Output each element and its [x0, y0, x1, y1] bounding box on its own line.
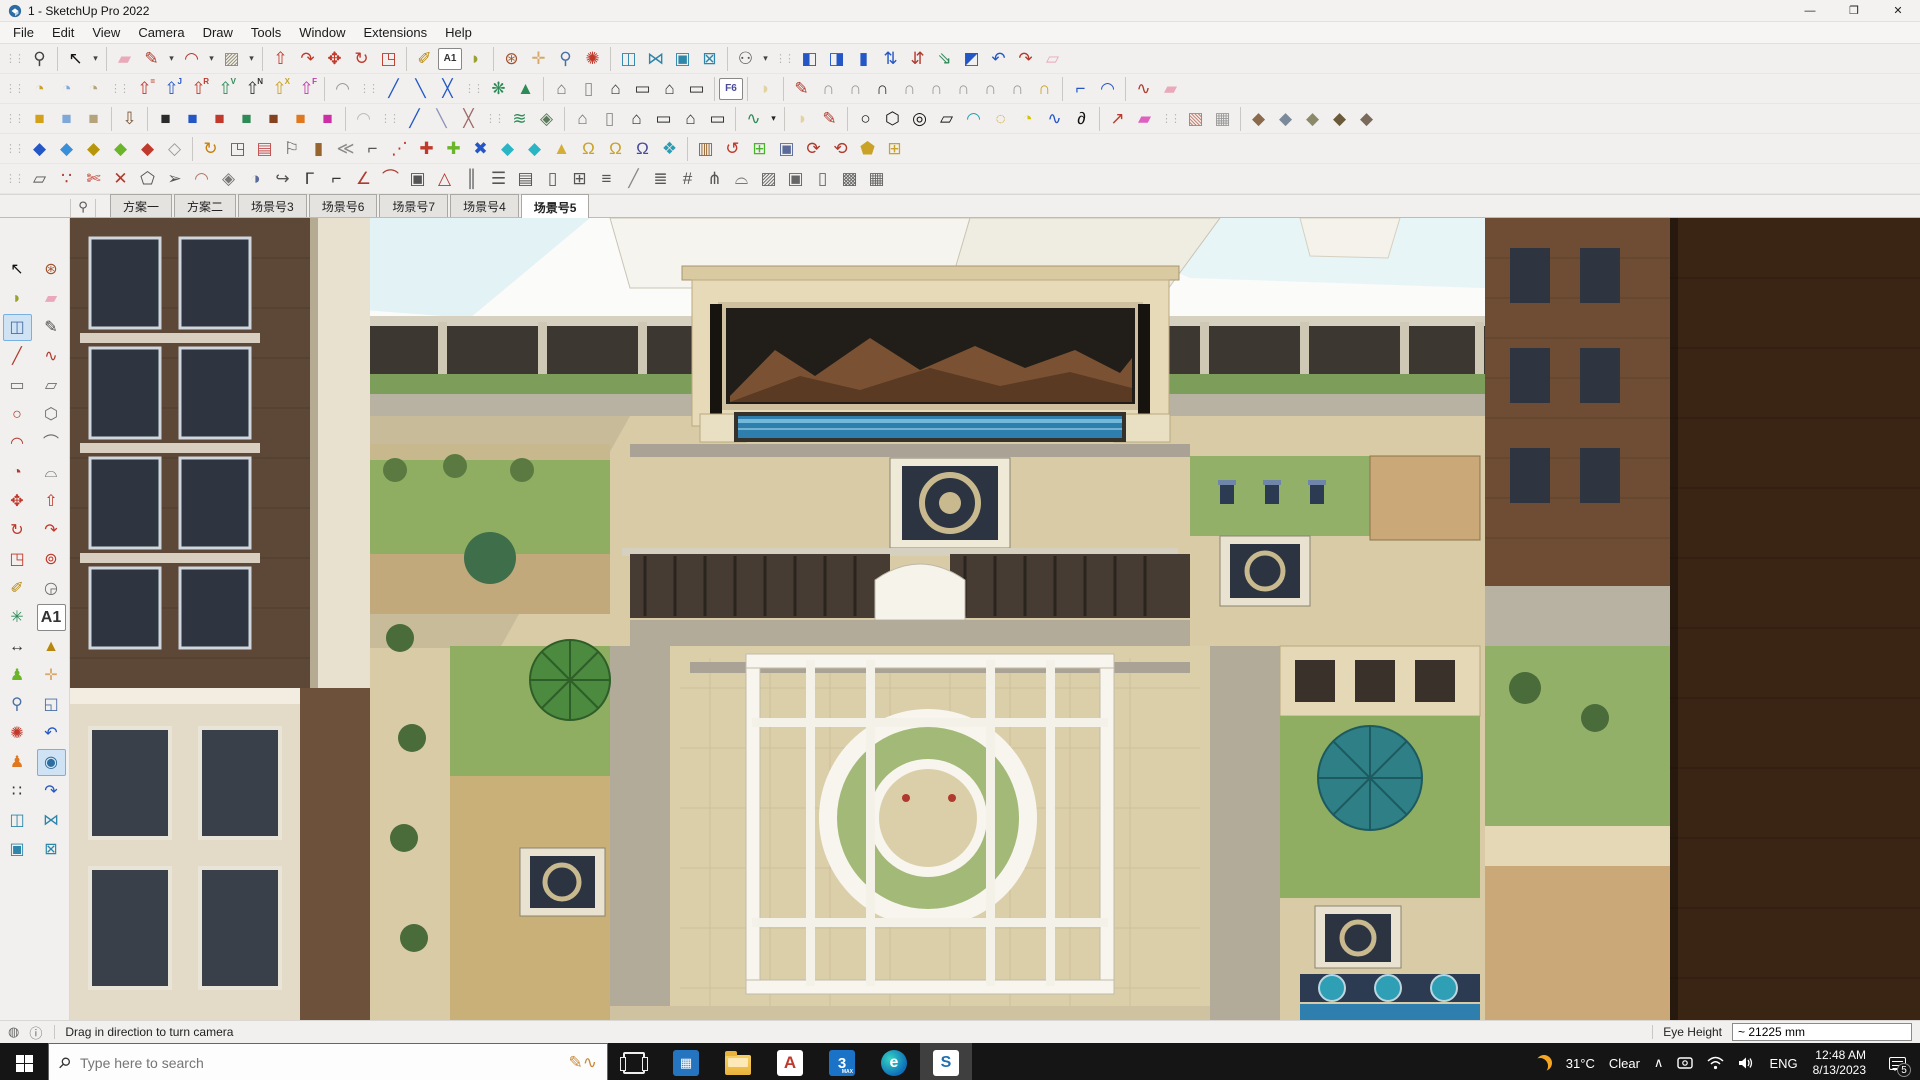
section-plane-button[interactable]: ◫: [615, 45, 642, 72]
left-tool-palette: ↖⊛◗▰◫✎╱∿▭▱○⬡◠⌒◔⌓✥⇧↻↷◳⊚✐◶✳A1↔▲♟✛⚲◱✺↶♟◉∷↷◫…: [0, 218, 70, 1020]
sketch-pencil-button[interactable]: ✎: [788, 75, 815, 102]
orbit-button[interactable]: ⊛: [37, 256, 66, 283]
ext-wall-button[interactable]: ▮: [850, 45, 877, 72]
pie-tool-button[interactable]: ◔: [1014, 105, 1041, 132]
curve-blue-button[interactable]: ∿: [1041, 105, 1068, 132]
hook-red-button[interactable]: ⌒: [377, 165, 404, 192]
zoom-extents-button[interactable]: ✺: [3, 720, 32, 747]
menu-edit[interactable]: Edit: [43, 23, 83, 42]
add-detail-button[interactable]: ◆: [1326, 105, 1353, 132]
taskbar-sketchup-button[interactable]: S: [920, 1043, 972, 1080]
lattice-red-button[interactable]: ◆: [134, 135, 161, 162]
toolbar-separator: [1062, 77, 1063, 101]
stairs-a-button[interactable]: ≣: [647, 165, 674, 192]
toolbar-separator: [610, 47, 611, 71]
stairs-b-button[interactable]: #: [674, 165, 701, 192]
flip-edge-button[interactable]: ◆: [1353, 105, 1380, 132]
weather-condition[interactable]: Clear: [1602, 1056, 1647, 1071]
arch-tool-5-button[interactable]: ∩: [923, 75, 950, 102]
curve-red-button[interactable]: ∿: [1130, 75, 1157, 102]
sketchup-logo-icon: [8, 4, 22, 18]
ext-redo-button[interactable]: ↷: [1012, 45, 1039, 72]
offset-button[interactable]: ⊚: [37, 546, 66, 573]
component-tan-button[interactable]: ■: [80, 105, 107, 132]
swirl-red-button[interactable]: ↺: [719, 135, 746, 162]
bend-arrow-button[interactable]: ↪: [269, 165, 296, 192]
corner-a-button[interactable]: Γ: [296, 165, 323, 192]
section-plane-button[interactable]: ◫: [3, 807, 32, 834]
windows-logo-icon: [16, 1055, 33, 1072]
walk-button[interactable]: ∷: [3, 778, 32, 805]
scene-tab-7[interactable]: 场景号5: [521, 194, 590, 218]
ext-raise-button[interactable]: ⇅: [877, 45, 904, 72]
crate-tool-button[interactable]: ▮: [305, 135, 332, 162]
lattice-blue-button[interactable]: ◆: [26, 135, 53, 162]
box-brown-button[interactable]: ■: [260, 105, 287, 132]
search-input[interactable]: [80, 1055, 569, 1071]
taskbar-search[interactable]: ⚲ ✎∿: [48, 1043, 608, 1080]
pyramid-button[interactable]: ▲: [548, 135, 575, 162]
toolbar-row-3: ⋮⋮■■■⇩■■■■■■■◠⋮⋮╱╲╳⋮⋮≋◈⌂▯⌂▭⌂▭∿▾◗✎○⬡◎▱◠◌◔…: [0, 104, 1920, 134]
select-dropdown[interactable]: ▾: [89, 45, 102, 72]
weave-tool-button[interactable]: ▦: [863, 165, 890, 192]
circle-dashed-button[interactable]: ◌: [987, 105, 1014, 132]
freehand-button[interactable]: ∿: [37, 343, 66, 370]
shell-tool-2-button[interactable]: ◗: [789, 105, 816, 132]
waterdrop-2-button[interactable]: ◆: [521, 135, 548, 162]
arch-tool-7-button[interactable]: ∩: [977, 75, 1004, 102]
round-corner-button[interactable]: ◔: [26, 75, 53, 102]
toolbar-separator: [493, 47, 494, 71]
toolbar-row-5: ⋮⋮▱∵✄✕⬠➢◠◈◑↪Γ⌐∠⌒▣△║☰▤▯⊞≡╱≣#⋔⌓▨▣▯▩▦: [0, 164, 1920, 194]
component-box-button[interactable]: ◫: [3, 314, 32, 341]
face-style-button[interactable]: ⚇: [732, 45, 759, 72]
arch-window-button[interactable]: ⌓: [728, 165, 755, 192]
section-fill-button[interactable]: ▣: [3, 836, 32, 863]
arch-tool-4-button[interactable]: ∩: [896, 75, 923, 102]
shape-point-button[interactable]: ➢: [161, 165, 188, 192]
curve-pink-button[interactable]: ▰: [1157, 75, 1184, 102]
arrow-2d-button[interactable]: ↗: [1104, 105, 1131, 132]
notification-center-button[interactable]: 5: [1874, 1043, 1920, 1080]
viewport-3d[interactable]: [70, 218, 1920, 1020]
arch-tool-8-button[interactable]: ∩: [1004, 75, 1031, 102]
component-gold-button[interactable]: ■: [26, 105, 53, 132]
lattice-white-button[interactable]: ◇: [161, 135, 188, 162]
move-button[interactable]: ✥: [321, 45, 348, 72]
book-tool-button[interactable]: ⊞: [566, 165, 593, 192]
roof-maker-button[interactable]: ⌂: [656, 75, 683, 102]
house-builder-button[interactable]: ⌂: [548, 75, 575, 102]
taskbar-3ds-max-button[interactable]: 3MAX: [816, 1043, 868, 1080]
clock-time: 12:48 AM: [1813, 1048, 1866, 1063]
scene-tab-2[interactable]: 方案二: [174, 194, 236, 217]
angle-red-button[interactable]: ∠: [350, 165, 377, 192]
task-view-icon: [623, 1052, 645, 1074]
arc-button[interactable]: ◠: [178, 45, 205, 72]
pushpull-extrude-button[interactable]: ⇧X: [266, 75, 293, 102]
rotated-rectangle-button[interactable]: ▱: [37, 372, 66, 399]
notification-badge: 5: [1897, 1063, 1911, 1077]
drape-button[interactable]: ◆: [1299, 105, 1326, 132]
pencil-stripe-button[interactable]: ╲: [428, 105, 455, 132]
pie-button[interactable]: ◔: [3, 459, 32, 486]
pushpull-equal-button[interactable]: ⇧=: [131, 75, 158, 102]
round-corner-3-button[interactable]: ◔: [80, 75, 107, 102]
meet-now-icon[interactable]: [1670, 1055, 1700, 1071]
corner-b-button[interactable]: ⌐: [323, 165, 350, 192]
scale-button[interactable]: ◳: [375, 45, 402, 72]
bent-pipe-button[interactable]: ⌐: [359, 135, 386, 162]
profile-graph-button[interactable]: ∿: [740, 105, 767, 132]
scene-tab-4[interactable]: 场景号6: [309, 194, 378, 217]
wire-sphere-button[interactable]: ◈: [533, 105, 560, 132]
status-divider-right: [1652, 1025, 1653, 1039]
zoom-window-button[interactable]: ◱: [37, 691, 66, 718]
slab-outline-button[interactable]: ▭: [650, 105, 677, 132]
text-button[interactable]: A1: [37, 604, 66, 631]
smoove-button[interactable]: ◆: [1245, 105, 1272, 132]
ext-slope-button[interactable]: ◨: [823, 45, 850, 72]
box-blue-button[interactable]: ■: [179, 105, 206, 132]
arch-tool-3-button[interactable]: ∩: [869, 75, 896, 102]
scale-button[interactable]: ◳: [3, 546, 32, 573]
pan-button[interactable]: ✛: [37, 662, 66, 689]
shield-gold-button[interactable]: ⬟: [854, 135, 881, 162]
tape-measure-button[interactable]: ✐: [3, 575, 32, 602]
house-plan-button[interactable]: ⌂: [602, 75, 629, 102]
branch-tool-button[interactable]: ⋔: [701, 165, 728, 192]
ext-restore-button[interactable]: ▱: [1039, 45, 1066, 72]
ext-target-button[interactable]: ⇘: [931, 45, 958, 72]
draw-line-guide-button[interactable]: ╳: [434, 75, 461, 102]
menu-view[interactable]: View: [83, 23, 129, 42]
cone-red-button[interactable]: △: [431, 165, 458, 192]
taskbar-edge-button[interactable]: e: [868, 1043, 920, 1080]
waterdrop-button[interactable]: ◆: [494, 135, 521, 162]
polygon-tool-button[interactable]: ⬡: [879, 105, 906, 132]
pencil-button[interactable]: ✎: [37, 314, 66, 341]
rectangle-button[interactable]: ▭: [3, 372, 32, 399]
house-outline-2-button[interactable]: ⌂: [677, 105, 704, 132]
toolbar-separator: [783, 77, 784, 101]
arch-tool-9-button[interactable]: ∩: [1031, 75, 1058, 102]
house-outline-button[interactable]: ⌂: [623, 105, 650, 132]
polygon-button[interactable]: ⬡: [37, 401, 66, 428]
rectangle-dropdown[interactable]: ▾: [245, 45, 258, 72]
ext-flip-button[interactable]: ◩: [958, 45, 985, 72]
pushpull-normal-button[interactable]: ⇧N: [239, 75, 266, 102]
marker-pen-button[interactable]: ✎: [816, 105, 843, 132]
spring-tool-button[interactable]: ≋: [506, 105, 533, 132]
fence-a-button[interactable]: ║: [458, 165, 485, 192]
weather-icon[interactable]: [1529, 1055, 1559, 1071]
lattice-sky-button[interactable]: ◆: [53, 135, 80, 162]
taskbar: ⚲ ✎∿ ▦A3MAXeS 31°C Clear ∧ ENG 12:48 AM …: [0, 1043, 1920, 1080]
menu-file[interactable]: File: [4, 23, 43, 42]
cut-tool-button[interactable]: ✄: [80, 165, 107, 192]
box-red-button[interactable]: ■: [206, 105, 233, 132]
weather-temperature[interactable]: 31°C: [1559, 1056, 1602, 1071]
eraser-button[interactable]: ▰: [111, 45, 138, 72]
cross-blue-button[interactable]: ✖: [467, 135, 494, 162]
dome-tool-button[interactable]: ◠: [350, 105, 377, 132]
door-tool-button[interactable]: ▯: [809, 165, 836, 192]
menu-extensions[interactable]: Extensions: [355, 23, 437, 42]
taskbar-autocad-button[interactable]: A: [764, 1043, 816, 1080]
shell-tool-button[interactable]: ◗: [752, 75, 779, 102]
circle-button[interactable]: ○: [3, 401, 32, 428]
line-button[interactable]: ✎: [138, 45, 165, 72]
bezier-red-button[interactable]: ∵: [53, 165, 80, 192]
box-rotate-2-button[interactable]: ⟲: [827, 135, 854, 162]
toolbar-drag-handle: ⋮⋮: [5, 82, 23, 95]
vegetation-button[interactable]: ❋: [485, 75, 512, 102]
dice-tool-button[interactable]: ⊞: [881, 135, 908, 162]
wifi-icon[interactable]: [1700, 1056, 1731, 1070]
select-button[interactable]: ↖: [3, 256, 32, 283]
window-title: 1 - SketchUp Pro 2022: [28, 4, 149, 18]
eye-height-input[interactable]: [1732, 1023, 1912, 1041]
round-corner-2-button[interactable]: ◔: [53, 75, 80, 102]
house-3d-button[interactable]: ⌂: [569, 105, 596, 132]
line-dropdown[interactable]: ▾: [165, 45, 178, 72]
zoom-extents-button[interactable]: ✺: [579, 45, 606, 72]
credits-icon[interactable]: ⓘ: [29, 1023, 42, 1042]
three-point-arc-button[interactable]: ⌓: [37, 459, 66, 486]
zoom-button[interactable]: ⚲: [3, 691, 32, 718]
gem-tool-button[interactable]: ◈: [215, 165, 242, 192]
stamp-button[interactable]: ◆: [1272, 105, 1299, 132]
column-tool-button[interactable]: ▯: [596, 105, 623, 132]
ext-lower-button[interactable]: ⇵: [904, 45, 931, 72]
spiral-tool-button[interactable]: ↻: [197, 135, 224, 162]
protractor-button[interactable]: ◶: [37, 575, 66, 602]
3d-text-button[interactable]: ▲: [37, 633, 66, 660]
box-magenta-button[interactable]: ■: [314, 105, 341, 132]
slab-outline-2-button[interactable]: ▭: [704, 105, 731, 132]
scene-tab-6[interactable]: 场景号4: [450, 194, 519, 217]
floor-maker-button[interactable]: ▭: [683, 75, 710, 102]
two-point-arc-button[interactable]: ⌒: [37, 430, 66, 457]
move-button[interactable]: ✥: [3, 488, 32, 515]
pencil-blue-button[interactable]: ╱: [401, 105, 428, 132]
hook-tool-2-button[interactable]: Ω: [602, 135, 629, 162]
pushpull-rubber-button[interactable]: ⇧R: [185, 75, 212, 102]
toolbar-separator: [57, 47, 58, 71]
taskbar-calculator-button[interactable]: ▦: [660, 1043, 712, 1080]
scene-tab-3[interactable]: 场景号3: [238, 194, 307, 217]
orbit-button[interactable]: ⊛: [498, 45, 525, 72]
rotate-button[interactable]: ↻: [3, 517, 32, 544]
sandbox-scratch-button[interactable]: ▦: [1209, 105, 1236, 132]
sandbox-contours-button[interactable]: ▧: [1182, 105, 1209, 132]
crate-open-button[interactable]: ▥: [692, 135, 719, 162]
axes-button[interactable]: ✳: [3, 604, 32, 631]
taskbar-clock[interactable]: 12:48 AM 8/13/2023: [1805, 1048, 1874, 1078]
look-around-button[interactable]: ◉: [37, 749, 66, 776]
follow-me-button[interactable]: ↷: [37, 517, 66, 544]
layers-tool-button[interactable]: ≡: [593, 165, 620, 192]
plus-green-button[interactable]: ✚: [440, 135, 467, 162]
push-pull-button[interactable]: ⇧: [37, 488, 66, 515]
round-edge-button[interactable]: ◠: [329, 75, 356, 102]
arch-tool-2-button[interactable]: ∩: [842, 75, 869, 102]
squiggle-tool-button[interactable]: ∂: [1068, 105, 1095, 132]
ext-flatten-button[interactable]: ◧: [796, 45, 823, 72]
chevrons-button[interactable]: ≪: [332, 135, 359, 162]
toolbar-separator: [111, 107, 112, 131]
toolbar-separator: [847, 107, 848, 131]
menu-help[interactable]: Help: [436, 23, 481, 42]
position-person-button[interactable]: ♟: [3, 662, 32, 689]
section-display-button[interactable]: ⋈: [37, 807, 66, 834]
rectangle-button[interactable]: ▨: [218, 45, 245, 72]
section-display-button[interactable]: ⋈: [642, 45, 669, 72]
follow-me-button[interactable]: ↷: [294, 45, 321, 72]
minimize-button[interactable]: —: [1788, 0, 1832, 21]
lattice-green-button[interactable]: ◆: [107, 135, 134, 162]
push-pull-button[interactable]: ⇧: [267, 45, 294, 72]
model-scene: [70, 218, 1920, 1020]
parallelogram-tool-button[interactable]: ▱: [933, 105, 960, 132]
fence-b-button[interactable]: ☰: [485, 165, 512, 192]
hatch-tool-button[interactable]: ▩: [836, 165, 863, 192]
lattice-gold-button[interactable]: ◆: [80, 135, 107, 162]
boxes-green-button[interactable]: ⊞: [746, 135, 773, 162]
wall-maker-button[interactable]: ▯: [575, 75, 602, 102]
fredo6-tools-button[interactable]: F6: [719, 78, 743, 100]
tree-maker-button[interactable]: ▲: [512, 75, 539, 102]
section-cuts-button[interactable]: ⊠: [37, 836, 66, 863]
dimension-button[interactable]: ↔: [3, 633, 32, 660]
paint-bucket-button[interactable]: ◗: [3, 285, 32, 312]
page-flip-button[interactable]: ▱: [26, 165, 53, 192]
box-wire-button[interactable]: ▣: [773, 135, 800, 162]
position-camera-button[interactable]: ♟: [3, 749, 32, 776]
menu-tools[interactable]: Tools: [242, 23, 290, 42]
tape-measure-button[interactable]: ✐: [411, 45, 438, 72]
text-button[interactable]: A1: [438, 48, 462, 70]
ext-undo-button[interactable]: ↶: [985, 45, 1012, 72]
geolocation-icon[interactable]: ◍: [8, 1024, 19, 1040]
system-tray: 31°C Clear ∧ ENG 12:48 AM 8/13/2023 5: [1529, 1043, 1920, 1080]
scene-tab-5[interactable]: 场景号7: [379, 194, 448, 217]
hook-dashed-button[interactable]: Ω: [629, 135, 656, 162]
corner-red-button[interactable]: ◳: [224, 135, 251, 162]
arc-blue-button[interactable]: ◠: [1094, 75, 1121, 102]
pipe-arc-button[interactable]: ◠: [188, 165, 215, 192]
pushpull-joint-button[interactable]: ⇧J: [158, 75, 185, 102]
frame-tool-button[interactable]: ▣: [782, 165, 809, 192]
toolbar-drag-handle: ⋮⋮: [5, 142, 23, 155]
profile-dropdown[interactable]: ▾: [767, 105, 780, 132]
sphere-split-button[interactable]: ◑: [242, 165, 269, 192]
zoom-button[interactable]: ⚲: [552, 45, 579, 72]
pin-tool-button[interactable]: ✕: [107, 165, 134, 192]
hatch-panel-button[interactable]: ▤: [512, 165, 539, 192]
calculator-icon: ▦: [673, 1050, 699, 1076]
taskbar-task-view-button[interactable]: [608, 1043, 660, 1080]
menu-draw[interactable]: Draw: [194, 23, 242, 42]
sketchup-icon: S: [933, 1050, 959, 1076]
arc-cyan-button[interactable]: ◠: [960, 105, 987, 132]
draw-line-blue-button[interactable]: ╱: [380, 75, 407, 102]
menu-camera[interactable]: Camera: [129, 23, 193, 42]
component-blue-button[interactable]: ■: [53, 105, 80, 132]
rotate-button[interactable]: ↻: [348, 45, 375, 72]
section-fill-button[interactable]: ▣: [669, 45, 696, 72]
ellipse-tool-button[interactable]: ◎: [906, 105, 933, 132]
arc-button[interactable]: ◠: [3, 430, 32, 457]
search-model-button[interactable]: ⚲: [26, 45, 53, 72]
striped-panel-button[interactable]: ▤: [251, 135, 278, 162]
corner-tool-button[interactable]: ⌐: [1067, 75, 1094, 102]
box-frame-button[interactable]: ▣: [404, 165, 431, 192]
next-view-button[interactable]: ↷: [37, 778, 66, 805]
taskbar-file-explorer-button[interactable]: [712, 1043, 764, 1080]
arch-tool-1-button[interactable]: ∩: [815, 75, 842, 102]
section-cuts-button[interactable]: ⊠: [696, 45, 723, 72]
pushpull-follow-button[interactable]: ⇧F: [293, 75, 320, 102]
panel-dark-button[interactable]: ▨: [755, 165, 782, 192]
pan-button[interactable]: ✛: [525, 45, 552, 72]
toolbar-drag-handle: ⋮⋮: [110, 82, 128, 95]
ramp-tool-button[interactable]: ╱: [620, 165, 647, 192]
page-tool-button[interactable]: ▯: [539, 165, 566, 192]
scene-search-icon[interactable]: ⚲: [70, 199, 96, 217]
start-button[interactable]: [0, 1043, 48, 1080]
tray-chevron-icon[interactable]: ∧: [1647, 1055, 1671, 1071]
maximize-button[interactable]: ❐: [1832, 0, 1876, 21]
box-orange-button[interactable]: ■: [287, 105, 314, 132]
face-style-dropdown[interactable]: ▾: [759, 45, 772, 72]
close-button[interactable]: ✕: [1876, 0, 1920, 21]
box-black-button[interactable]: ■: [152, 105, 179, 132]
polygon-dashed-button[interactable]: ⬠: [134, 165, 161, 192]
scene-tab-1[interactable]: 方案一: [110, 194, 172, 217]
paint-bucket-button[interactable]: ◗: [462, 45, 489, 72]
language-indicator[interactable]: ENG: [1762, 1056, 1804, 1071]
bezier-dots-button[interactable]: ⋰: [386, 135, 413, 162]
plus-red-button[interactable]: ✚: [413, 135, 440, 162]
drop-component-button[interactable]: ⇩: [116, 105, 143, 132]
toolbars: ⋮⋮⚲↖▾▰✎▾◠▾▨▾⇧↷✥↻◳✐A1◗⊛✛⚲✺◫⋈▣⊠⚇▾⋮⋮◧◨▮⇅⇵⇘◩…: [0, 44, 1920, 195]
compass-blue-button[interactable]: ❖: [656, 135, 683, 162]
box-rotate-button[interactable]: ⟳: [800, 135, 827, 162]
circle-tool-button[interactable]: ○: [852, 105, 879, 132]
volume-icon[interactable]: [1731, 1056, 1762, 1070]
pencil-stripe-2-button[interactable]: ╳: [455, 105, 482, 132]
eraser-button[interactable]: ▰: [37, 285, 66, 312]
select-button[interactable]: ↖: [62, 45, 89, 72]
draw-line-dashed-button[interactable]: ╲: [407, 75, 434, 102]
flag-tool-button[interactable]: ⚐: [278, 135, 305, 162]
slab-maker-button[interactable]: ▭: [629, 75, 656, 102]
arch-tool-6-button[interactable]: ∩: [950, 75, 977, 102]
hook-tool-button[interactable]: Ω: [575, 135, 602, 162]
previous-view-button[interactable]: ↶: [37, 720, 66, 747]
toolbar-drag-handle: ⋮⋮: [5, 52, 23, 65]
arc-dropdown[interactable]: ▾: [205, 45, 218, 72]
toolbar-separator: [406, 47, 407, 71]
pushpull-vector-button[interactable]: ⇧V: [212, 75, 239, 102]
line-button[interactable]: ╱: [3, 343, 32, 370]
box-green-button[interactable]: ■: [233, 105, 260, 132]
eraser-pink-button[interactable]: ▰: [1131, 105, 1158, 132]
toolbar-separator: [747, 77, 748, 101]
menu-window[interactable]: Window: [290, 23, 354, 42]
